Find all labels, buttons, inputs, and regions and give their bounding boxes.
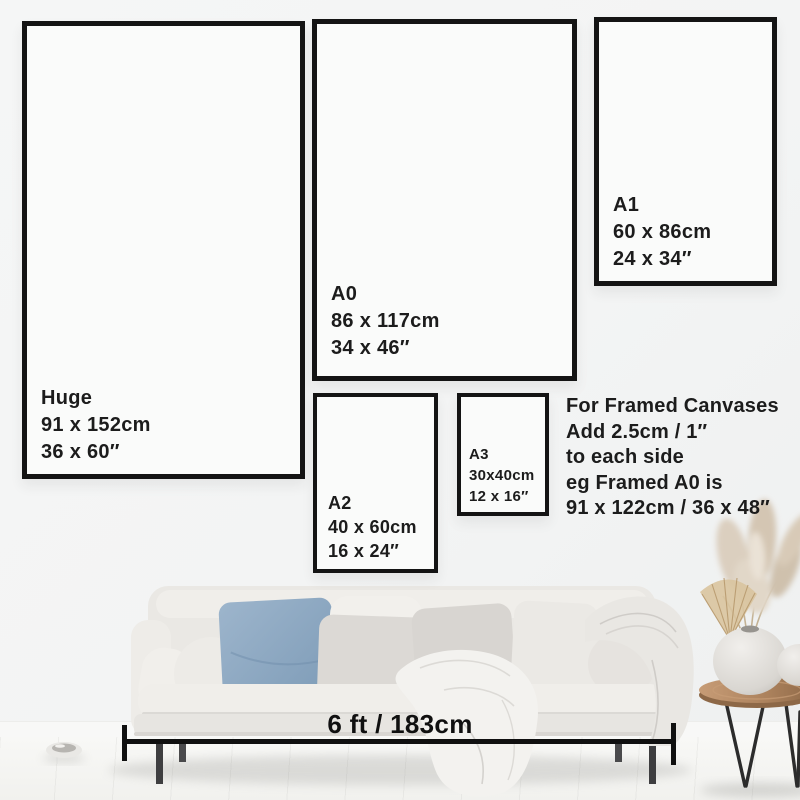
size-inches: 16 x 24″ [328,539,417,563]
note-line: to each side [566,445,798,471]
note-line: eg Framed A0 is [566,471,798,497]
size-inches: 12 x 16″ [469,486,535,507]
size-guide-scene: Huge 91 x 152cm 36 x 60″ A0 86 x 117cm 3… [0,0,800,800]
size-cm: 60 x 86cm [613,219,711,246]
table-shadow [700,783,800,797]
size-cm: 40 x 60cm [328,515,417,539]
note-line: 91 x 122cm / 36 x 48″ [566,496,798,522]
size-name: A3 [469,444,535,465]
frame-a0-label: A0 86 x 117cm 34 x 46″ [331,281,440,362]
frame-a2-label: A2 40 x 60cm 16 x 24″ [328,491,417,563]
sofa-shadow [108,755,692,785]
measurement-label: 6 ft / 183cm [327,709,472,740]
frame-huge-label: Huge 91 x 152cm 36 x 60″ [41,385,151,466]
decor-bowl [46,742,82,758]
sofa-leg-back-right [615,744,622,762]
measurement-endcap-right [671,723,676,765]
framed-canvas-note: For Framed Canvases Add 2.5cm / 1″ to ea… [566,394,798,522]
size-name: Huge [41,385,151,412]
frame-a1-label: A1 60 x 86cm 24 x 34″ [613,192,711,273]
frame-a0: A0 86 x 117cm 34 x 46″ [312,19,577,381]
frame-huge: Huge 91 x 152cm 36 x 60″ [22,21,305,479]
size-inches: 34 x 46″ [331,335,440,362]
size-cm: 30x40cm [469,465,535,486]
size-inches: 36 x 60″ [41,439,151,466]
size-name: A2 [328,491,417,515]
sofa-leg-front-right [649,744,656,784]
size-cm: 91 x 152cm [41,412,151,439]
sofa-leg-back-left [179,744,186,762]
size-name: A1 [613,192,711,219]
size-cm: 86 x 117cm [331,308,440,335]
vase-large-mouth [741,626,759,633]
note-line: For Framed Canvases [566,394,798,420]
sofa-leg-front-left [156,744,163,784]
hairpin-legs [726,702,800,786]
size-name: A0 [331,281,440,308]
size-inches: 24 x 34″ [613,246,711,273]
frame-a3: A3 30x40cm 12 x 16″ [457,393,549,516]
measurement-endcap-left [122,725,127,761]
note-line: Add 2.5cm / 1″ [566,420,798,446]
frame-a2: A2 40 x 60cm 16 x 24″ [313,393,438,573]
vase-large [713,627,787,695]
frame-a3-label: A3 30x40cm 12 x 16″ [469,444,535,507]
frame-a1: A1 60 x 86cm 24 x 34″ [594,17,777,286]
